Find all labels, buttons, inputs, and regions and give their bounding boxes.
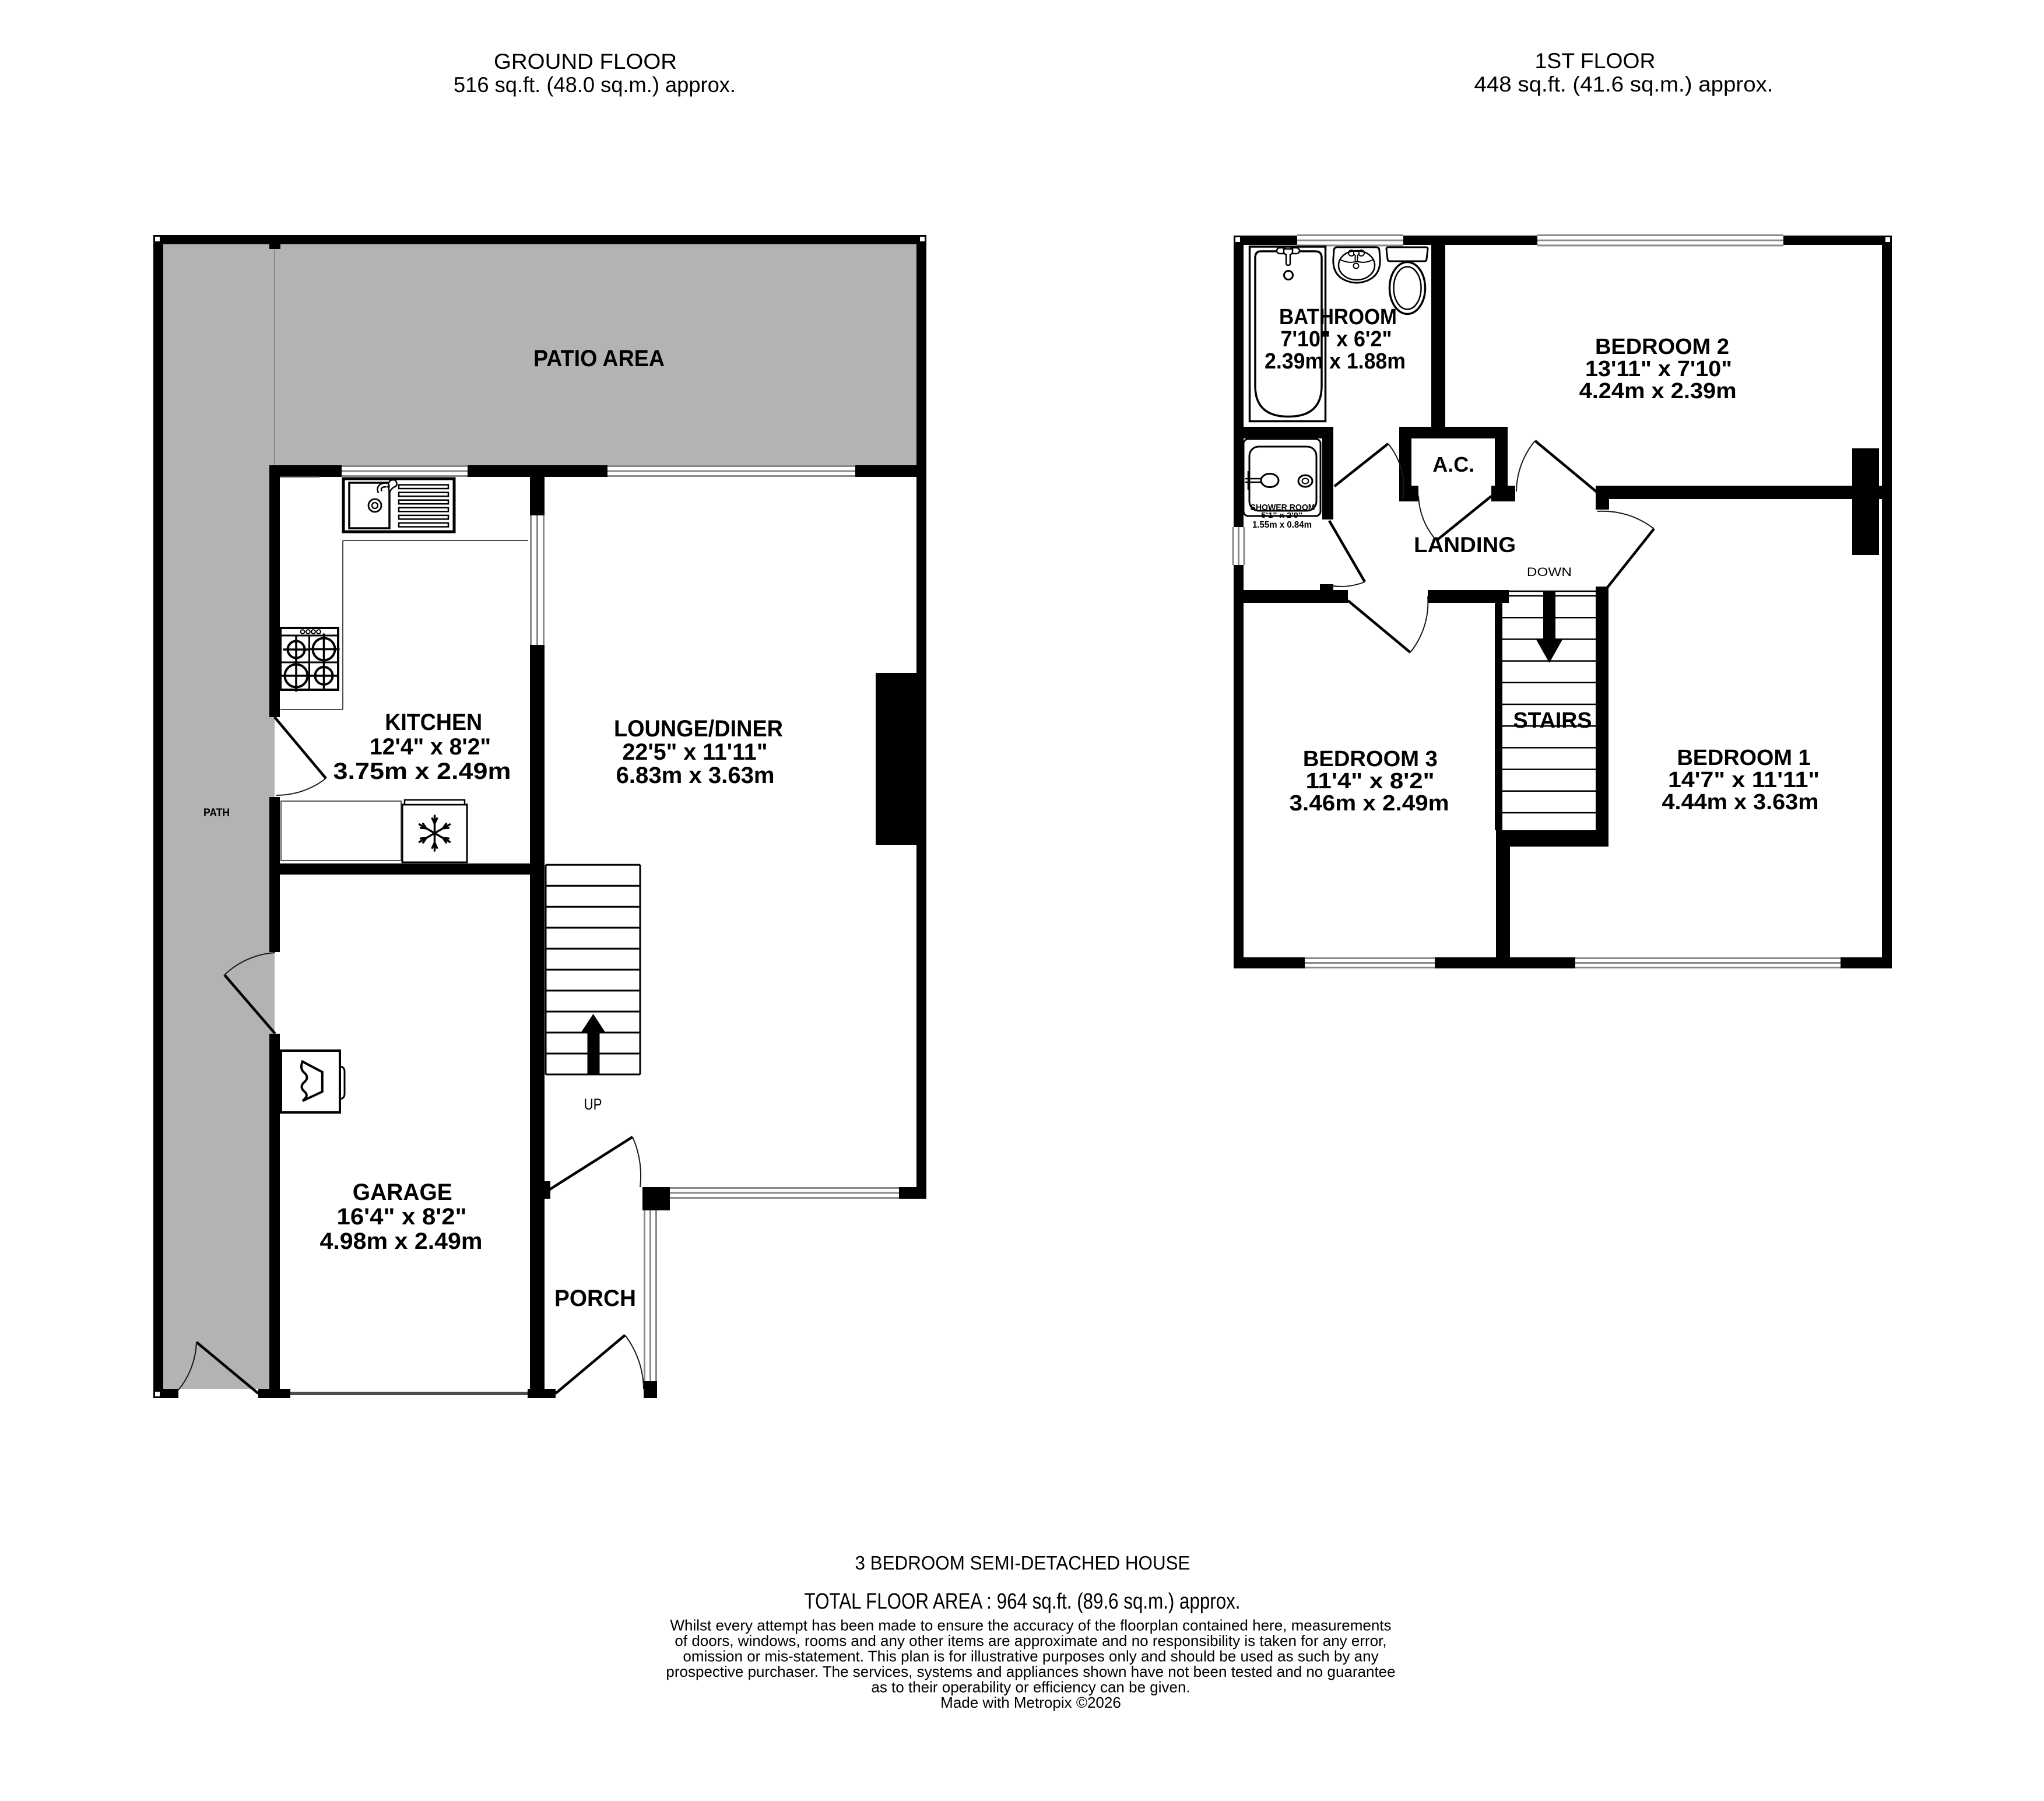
svg-text:STAIRS: STAIRS (1513, 708, 1592, 733)
svg-text:4.44m x 3.63m: 4.44m x 3.63m (1662, 790, 1819, 815)
svg-text:as to their operability or eff: as to their operability or efficiency ca… (871, 1678, 1190, 1695)
svg-text:11'4" x 8'2": 11'4" x 8'2" (1306, 769, 1435, 794)
svg-text:Whilst every attempt has been: Whilst every attempt has been made to en… (670, 1616, 1391, 1634)
svg-text:448 sq.ft. (41.6 sq.m.) approx: 448 sq.ft. (41.6 sq.m.) approx. (1474, 72, 1773, 96)
svg-text:1.55m x 0.84m: 1.55m x 0.84m (1252, 520, 1312, 530)
svg-text:516 sq.ft. (48.0 sq.m.) approx: 516 sq.ft. (48.0 sq.m.) approx. (454, 73, 736, 97)
svg-text:14'7" x 11'11": 14'7" x 11'11" (1668, 768, 1820, 792)
svg-text:3.46m x 2.49m: 3.46m x 2.49m (1290, 791, 1449, 816)
svg-text:UP: UP (584, 1096, 602, 1113)
svg-text:6.83m x 3.63m: 6.83m x 3.63m (616, 763, 775, 788)
svg-text:Made with Metropix ©2026: Made with Metropix ©2026 (940, 1694, 1121, 1711)
svg-text:7'10" x 6'2": 7'10" x 6'2" (1281, 327, 1392, 352)
svg-text:PATH: PATH (203, 807, 230, 819)
svg-text:4.24m x 2.39m: 4.24m x 2.39m (1579, 379, 1737, 403)
svg-text:BEDROOM 3: BEDROOM 3 (1303, 747, 1438, 771)
svg-text:PORCH: PORCH (554, 1286, 636, 1311)
svg-text:2.39m x 1.88m: 2.39m x 1.88m (1265, 349, 1406, 374)
svg-text:of doors, windows, rooms and a: of doors, windows, rooms and any other i… (675, 1632, 1386, 1649)
svg-text:LOUNGE/DINER: LOUNGE/DINER (614, 716, 783, 742)
svg-text:prospective purchaser. The ser: prospective purchaser. The services, sys… (666, 1663, 1395, 1680)
svg-text:4.98m x 2.49m: 4.98m x 2.49m (320, 1228, 483, 1254)
svg-text:16'4" x 8'2": 16'4" x 8'2" (337, 1204, 467, 1230)
svg-text:3.75m x 2.49m: 3.75m x 2.49m (333, 759, 511, 784)
svg-text:omission or mis-statement. Thi: omission or mis-statement. This plan is … (683, 1647, 1378, 1665)
svg-text:22'5" x 11'11": 22'5" x 11'11" (623, 739, 768, 765)
svg-text:BATHROOM: BATHROOM (1279, 305, 1397, 329)
svg-text:5'1" x 2'9": 5'1" x 2'9" (1261, 511, 1302, 519)
svg-text:PATIO AREA: PATIO AREA (533, 346, 665, 371)
svg-text:DOWN: DOWN (1527, 565, 1572, 579)
svg-text:GARAGE: GARAGE (353, 1179, 452, 1205)
svg-text:TOTAL FLOOR AREA : 964 sq.ft.: TOTAL FLOOR AREA : 964 sq.ft. (89.6 sq.m… (805, 1589, 1241, 1614)
svg-text:12'4" x 8'2": 12'4" x 8'2" (370, 734, 491, 760)
svg-text:KITCHEN: KITCHEN (385, 710, 482, 735)
svg-text:GROUND FLOOR: GROUND FLOOR (494, 50, 677, 73)
svg-text:BEDROOM 1: BEDROOM 1 (1677, 746, 1811, 770)
svg-text:A.C.: A.C. (1432, 452, 1474, 476)
svg-text:1ST FLOOR: 1ST FLOOR (1535, 49, 1656, 73)
svg-text:3 BEDROOM SEMI-DETACHED HOUSE: 3 BEDROOM SEMI-DETACHED HOUSE (855, 1552, 1190, 1574)
svg-text:LANDING: LANDING (1414, 533, 1516, 557)
svg-text:13'11" x 7'10": 13'11" x 7'10" (1585, 357, 1732, 381)
svg-text:BEDROOM 2: BEDROOM 2 (1595, 335, 1729, 359)
